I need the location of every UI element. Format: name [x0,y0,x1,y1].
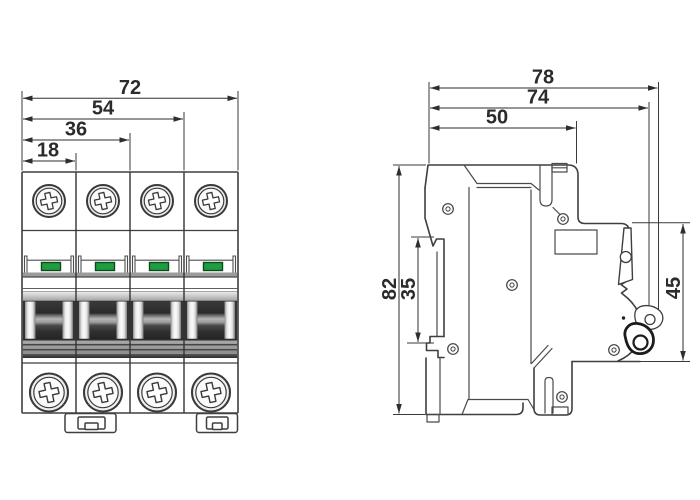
green-indicator-icon [96,263,115,271]
toggle-handle [144,302,171,340]
toggle-handle [90,302,117,340]
side-extension-lines [393,82,690,415]
screw-icon [33,185,65,217]
rivet-icon [443,204,454,215]
rivet-icon [448,344,459,355]
toggle-handle [36,302,63,340]
din-clip [197,414,238,433]
dim-label-top-depth: 50 [486,107,508,129]
green-indicator-icon [42,263,61,271]
screw-icon [84,374,122,412]
screw-icon [30,374,68,412]
green-indicator-icon [150,263,169,271]
drawing-svg: 72 54 36 18 [0,0,700,500]
dim-label-depth-pivot: 74 [527,87,550,109]
label-plate [555,230,597,254]
dim-label-two-poles: 36 [65,119,87,141]
dim-label-overall-depth: 78 [532,67,554,89]
rivet-icon [557,392,568,403]
din-foot [427,415,439,423]
dim-label-one-pole: 18 [37,140,59,162]
dim-label-din-recess: 35 [398,278,420,300]
din-clip [65,414,116,433]
dim-label-three-poles: 54 [92,98,115,120]
front-view: 72 54 36 18 [22,77,238,433]
rivet-icon [609,345,620,356]
screw-icon [138,374,176,412]
toggle-handle [198,302,225,340]
rivet-icon [507,280,518,291]
green-indicator-icon [204,263,223,271]
din-latch [427,337,445,358]
mcb-dimension-drawing: 72 54 36 18 [0,0,700,500]
handle-recess [540,165,552,206]
screw-icon [192,374,230,412]
rivet-icon [558,214,569,225]
dim-label-overall-width: 72 [119,77,141,99]
dim-label-front-height: 45 [663,277,685,299]
side-profile [425,164,642,423]
screw-icon [87,185,119,217]
screw-icon [141,185,173,217]
screw-icon [195,185,227,217]
side-view: 78 74 50 82 35 45 [379,67,690,423]
